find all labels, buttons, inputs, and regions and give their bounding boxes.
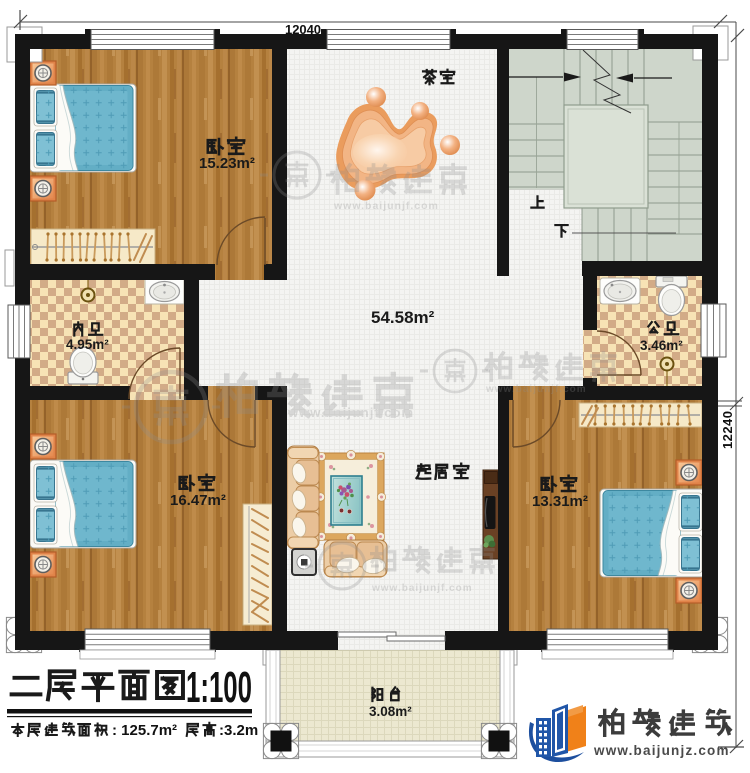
svg-text:4.95m²: 4.95m² [66,337,109,352]
svg-text:www.baijunjf.com: www.baijunjf.com [287,405,414,420]
svg-text:: 125.7m²: : 125.7m² [112,722,177,739]
svg-text:16.47m²: 16.47m² [170,492,226,509]
svg-text:3.46m²: 3.46m² [640,338,683,353]
svg-text:54.58m²: 54.58m² [371,308,435,327]
svg-text:3.08m²: 3.08m² [369,704,412,719]
svg-text:15.23m²: 15.23m² [199,155,255,172]
svg-text:12240: 12240 [720,411,735,449]
svg-text:13.31m²: 13.31m² [532,493,588,510]
svg-text:www.baijunjf.com: www.baijunjf.com [371,583,473,594]
svg-text::3.2m: :3.2m [219,722,258,739]
svg-text:12040: 12040 [285,22,321,37]
svg-text:www.baijunjz.com: www.baijunjz.com [593,743,730,758]
svg-text:www.baijunjf.com: www.baijunjf.com [485,384,587,395]
svg-text:www.baijunjf.com: www.baijunjf.com [333,200,439,212]
svg-text:1:100: 1:100 [186,663,252,712]
